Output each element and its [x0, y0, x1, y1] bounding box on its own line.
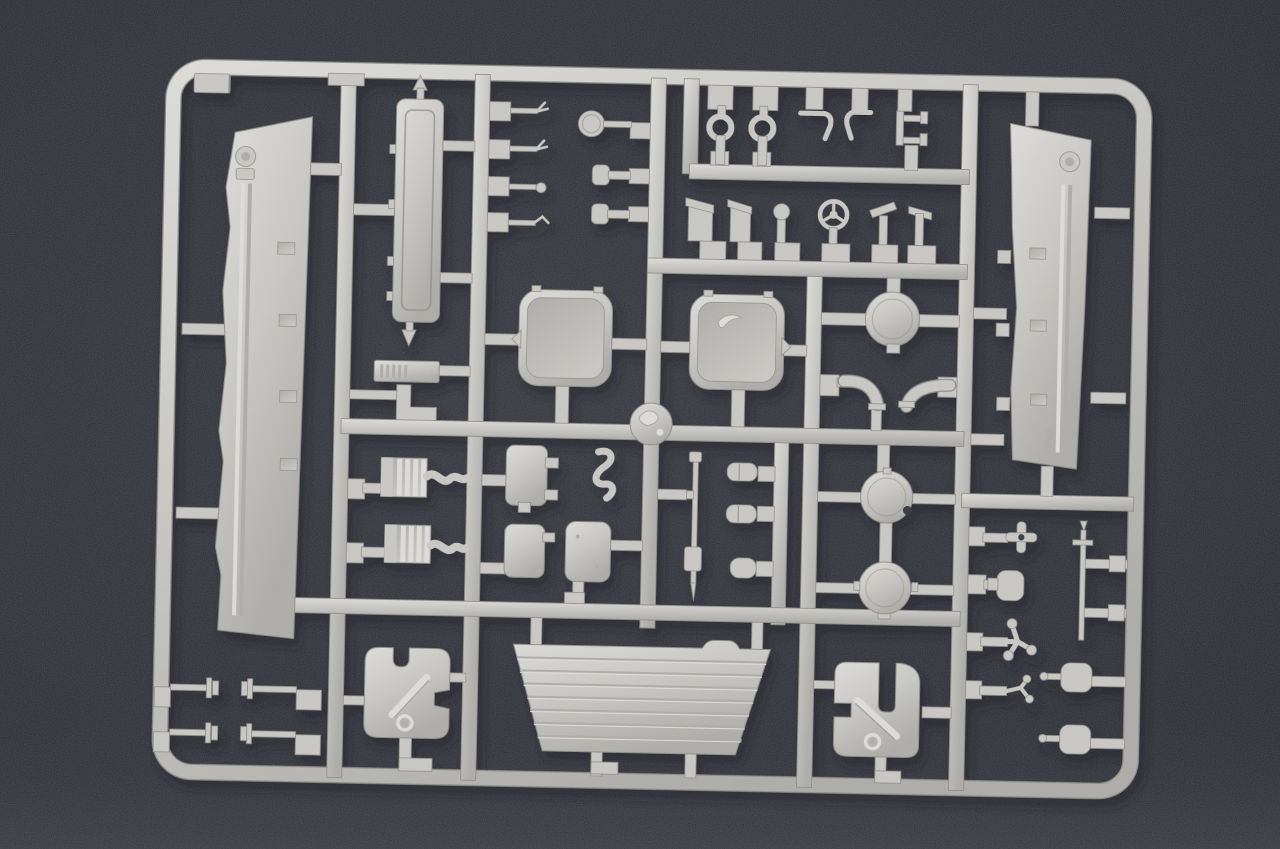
- periscope-3: [773, 204, 789, 220]
- crew-hatch-left: [511, 285, 613, 387]
- medallion-disc: [630, 403, 673, 446]
- photo-canvas: [0, 0, 1280, 849]
- sprue-photo: [0, 0, 1280, 849]
- frame-corner-tab: [194, 73, 230, 93]
- crew-hatch-right: [689, 290, 792, 391]
- ribbed-glacis-plate: [511, 636, 770, 755]
